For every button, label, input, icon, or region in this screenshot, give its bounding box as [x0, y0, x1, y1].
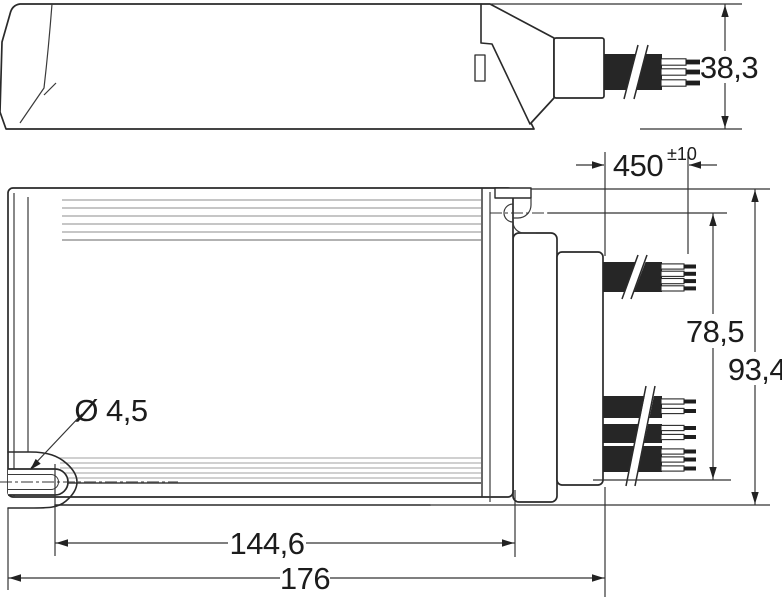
- cable-length-label: 450: [613, 148, 663, 183]
- wire: [661, 466, 696, 471]
- side-view: [0, 4, 700, 129]
- strain-relief: [554, 38, 604, 98]
- wire: [661, 279, 696, 284]
- wire: [661, 69, 700, 75]
- cable-exit-block: [557, 252, 603, 485]
- cable-side-view: [604, 45, 700, 99]
- dimension-450: 450 ±10: [576, 144, 717, 256]
- cover-plate: [513, 233, 557, 502]
- wire: [661, 434, 696, 439]
- drawing-canvas: 38,3 450 ±10 78,5 93,4 Ø 4,5: [0, 0, 782, 600]
- wire: [661, 80, 700, 86]
- hole-pitch-horizontal-label: 144,6: [229, 526, 304, 561]
- wire: [661, 59, 700, 65]
- wire: [661, 457, 696, 462]
- wire: [661, 399, 696, 404]
- hole-pitch-vertical-label: 78,5: [686, 314, 744, 349]
- side-view-body: [0, 4, 554, 129]
- hole-diameter-label: Ø 4,5: [74, 393, 147, 428]
- cable-group-input: [603, 386, 696, 486]
- side-view-slot-detail: [475, 55, 485, 81]
- overall-length-label: 176: [280, 561, 330, 596]
- keyhole-curve: [513, 222, 536, 233]
- wire: [661, 408, 696, 413]
- height-dimension-label: 38,3: [700, 50, 758, 85]
- dimension-drawing: 38,3 450 ±10 78,5 93,4 Ø 4,5: [0, 0, 782, 600]
- wire: [661, 286, 696, 291]
- plan-view-body: [8, 188, 513, 497]
- wire: [661, 271, 696, 276]
- wire: [661, 264, 696, 269]
- plan-view: [0, 188, 696, 508]
- cable-output: [603, 255, 696, 299]
- keyhole-hook: [513, 198, 531, 218]
- overall-width-label: 93,4: [728, 352, 782, 387]
- cable-length-tolerance-label: ±10: [667, 144, 697, 164]
- wire: [661, 449, 696, 454]
- wire: [661, 425, 696, 430]
- keyhole-lip: [495, 188, 531, 198]
- cable-sheath: [603, 424, 662, 443]
